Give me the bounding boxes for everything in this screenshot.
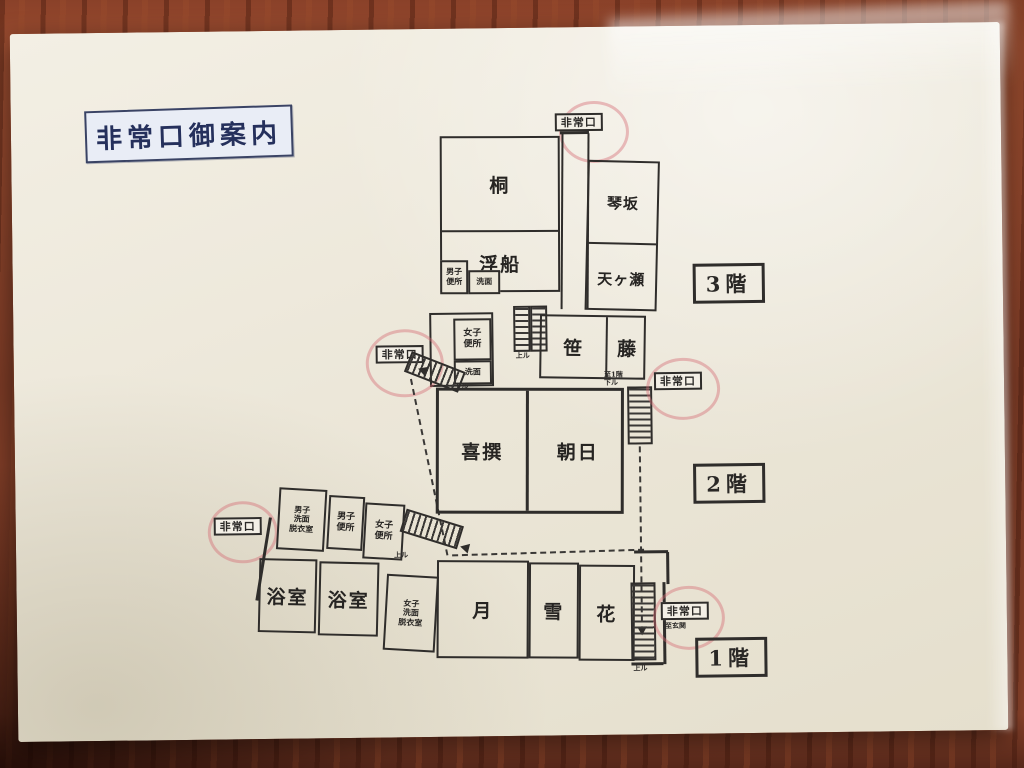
room-block-left-3f: 桐 浮船 男子 便所 洗面: [440, 136, 561, 292]
stairs-up-note-2f: 上ル: [516, 352, 530, 360]
exit-note-1f-right: 至玄関: [665, 622, 686, 630]
room-label-mens-dressing: 男子 洗面 脱衣室: [289, 504, 315, 534]
room-label-kotosaka: 琴坂: [607, 192, 639, 214]
room-tsuki: 月: [437, 560, 530, 658]
room-label-hana: 花: [596, 599, 617, 626]
room-label-bath-right: 浴室: [327, 585, 370, 613]
room-label-sasa: 笹: [563, 333, 584, 360]
document-title: 非常口御案内: [95, 112, 282, 155]
room-block-right-3f: 琴坂 天ヶ瀬: [585, 160, 660, 312]
wall-step-side-1f-right: [666, 552, 669, 584]
emergency-exit-label: 非常口: [561, 114, 597, 130]
room-mens-toilet-1f: 男子 便所: [326, 495, 365, 551]
paper-sheet: 非常口御案内 非常口 桐 浮船 男子 便所 洗面 琴坂: [10, 22, 1009, 742]
floor2-badge-label: 2階: [706, 471, 752, 497]
room-asahi: 朝日: [529, 391, 627, 511]
sleeve-edge-glare: [980, 22, 1013, 730]
room-label-womens-toilet-2f: 女子 便所: [463, 329, 481, 351]
emergency-exit-label: 非常口: [660, 373, 696, 389]
room-label-amagase: 天ヶ瀬: [597, 268, 645, 290]
floor1-badge: 1階: [695, 637, 767, 678]
stairs-up-note-1f-center: 上ル: [394, 551, 408, 559]
room-label-womens-dressing: 女子 洗面 脱衣室: [398, 598, 424, 628]
room-label-kiri: 桐: [489, 171, 510, 198]
floor3-badge-label: 3階: [706, 271, 752, 297]
emergency-exit-badge-1f-left: 非常口: [214, 517, 262, 536]
room-label-bath-left: 浴室: [266, 582, 309, 610]
room-kotosaka: 琴坂: [588, 162, 658, 246]
room-womens-toilet-2f: 女子 便所: [453, 318, 492, 360]
room-bath-right: 浴室: [318, 561, 380, 636]
room-hana: 花: [579, 565, 636, 661]
stairs-note-2f-right: 至1階 下ル: [604, 371, 623, 387]
stairs-up-note-1f-right: 上ル: [633, 664, 647, 672]
room-mens-dressing-1f: 男子 洗面 脱衣室: [276, 487, 327, 552]
emergency-exit-badge-2f-right: 非常口: [654, 372, 702, 391]
emergency-exit-badge-3f-top: 非常口: [555, 113, 603, 132]
room-label-washbasin-2f: 洗面: [465, 368, 481, 378]
room-label-asahi: 朝日: [557, 437, 599, 464]
document-title-box: 非常口御案内: [84, 104, 294, 163]
room-label-womens-toilet-1f: 女子 便所: [374, 520, 393, 543]
photo-of-emergency-exit-floor-plan: 非常口御案内 非常口 桐 浮船 男子 便所 洗面 琴坂: [0, 0, 1024, 768]
floor1-badge-label: 1階: [708, 645, 754, 671]
room-fuji: 藤: [607, 317, 648, 378]
room-label-fuji: 藤: [617, 334, 638, 361]
floor3-badge: 3階: [693, 263, 765, 304]
room-kiri: 桐: [442, 138, 558, 232]
route-arrow-1f-center: [459, 542, 470, 554]
room-label-kisen: 喜撰: [461, 437, 503, 464]
staircase-3f-2f-left-flight: [513, 306, 531, 352]
room-womens-dressing-1f: 女子 洗面 脱衣室: [383, 574, 439, 653]
room-label-mens-toilet-3f: 男子 便所: [446, 268, 462, 287]
room-label-yuki: 雪: [543, 597, 564, 624]
staircase-1f-2f-center: [400, 509, 464, 550]
wall-step-top-1f-right: [634, 550, 668, 553]
plastic-sleeve-glare: [608, 1, 1011, 100]
room-sasa: 笹: [541, 316, 608, 377]
room-label-washbasin-3f: 洗面: [476, 277, 492, 287]
escape-route-dashed-1f-horizontal: [452, 549, 644, 557]
emergency-exit-label: 非常口: [220, 518, 256, 534]
room-washbasin-3f: 洗面: [468, 270, 500, 294]
room-kisen: 喜撰: [439, 391, 529, 511]
room-amagase: 天ヶ瀬: [586, 244, 656, 314]
room-bath-left: 浴室: [258, 558, 318, 633]
room-label-mens-toilet-1f: 男子 便所: [336, 512, 355, 535]
room-block-top-2f: 笹 藤: [539, 314, 646, 379]
room-yuki: 雪: [529, 562, 580, 658]
emergency-exit-badge-1f-right: 非常口: [661, 602, 709, 621]
room-label-tsuki: 月: [472, 596, 493, 623]
room-block-main-2f: 喜撰 朝日: [436, 388, 624, 514]
emergency-exit-label: 非常口: [667, 603, 703, 619]
floor2-badge: 2階: [693, 463, 765, 504]
room-mens-toilet-3f: 男子 便所: [440, 260, 468, 294]
